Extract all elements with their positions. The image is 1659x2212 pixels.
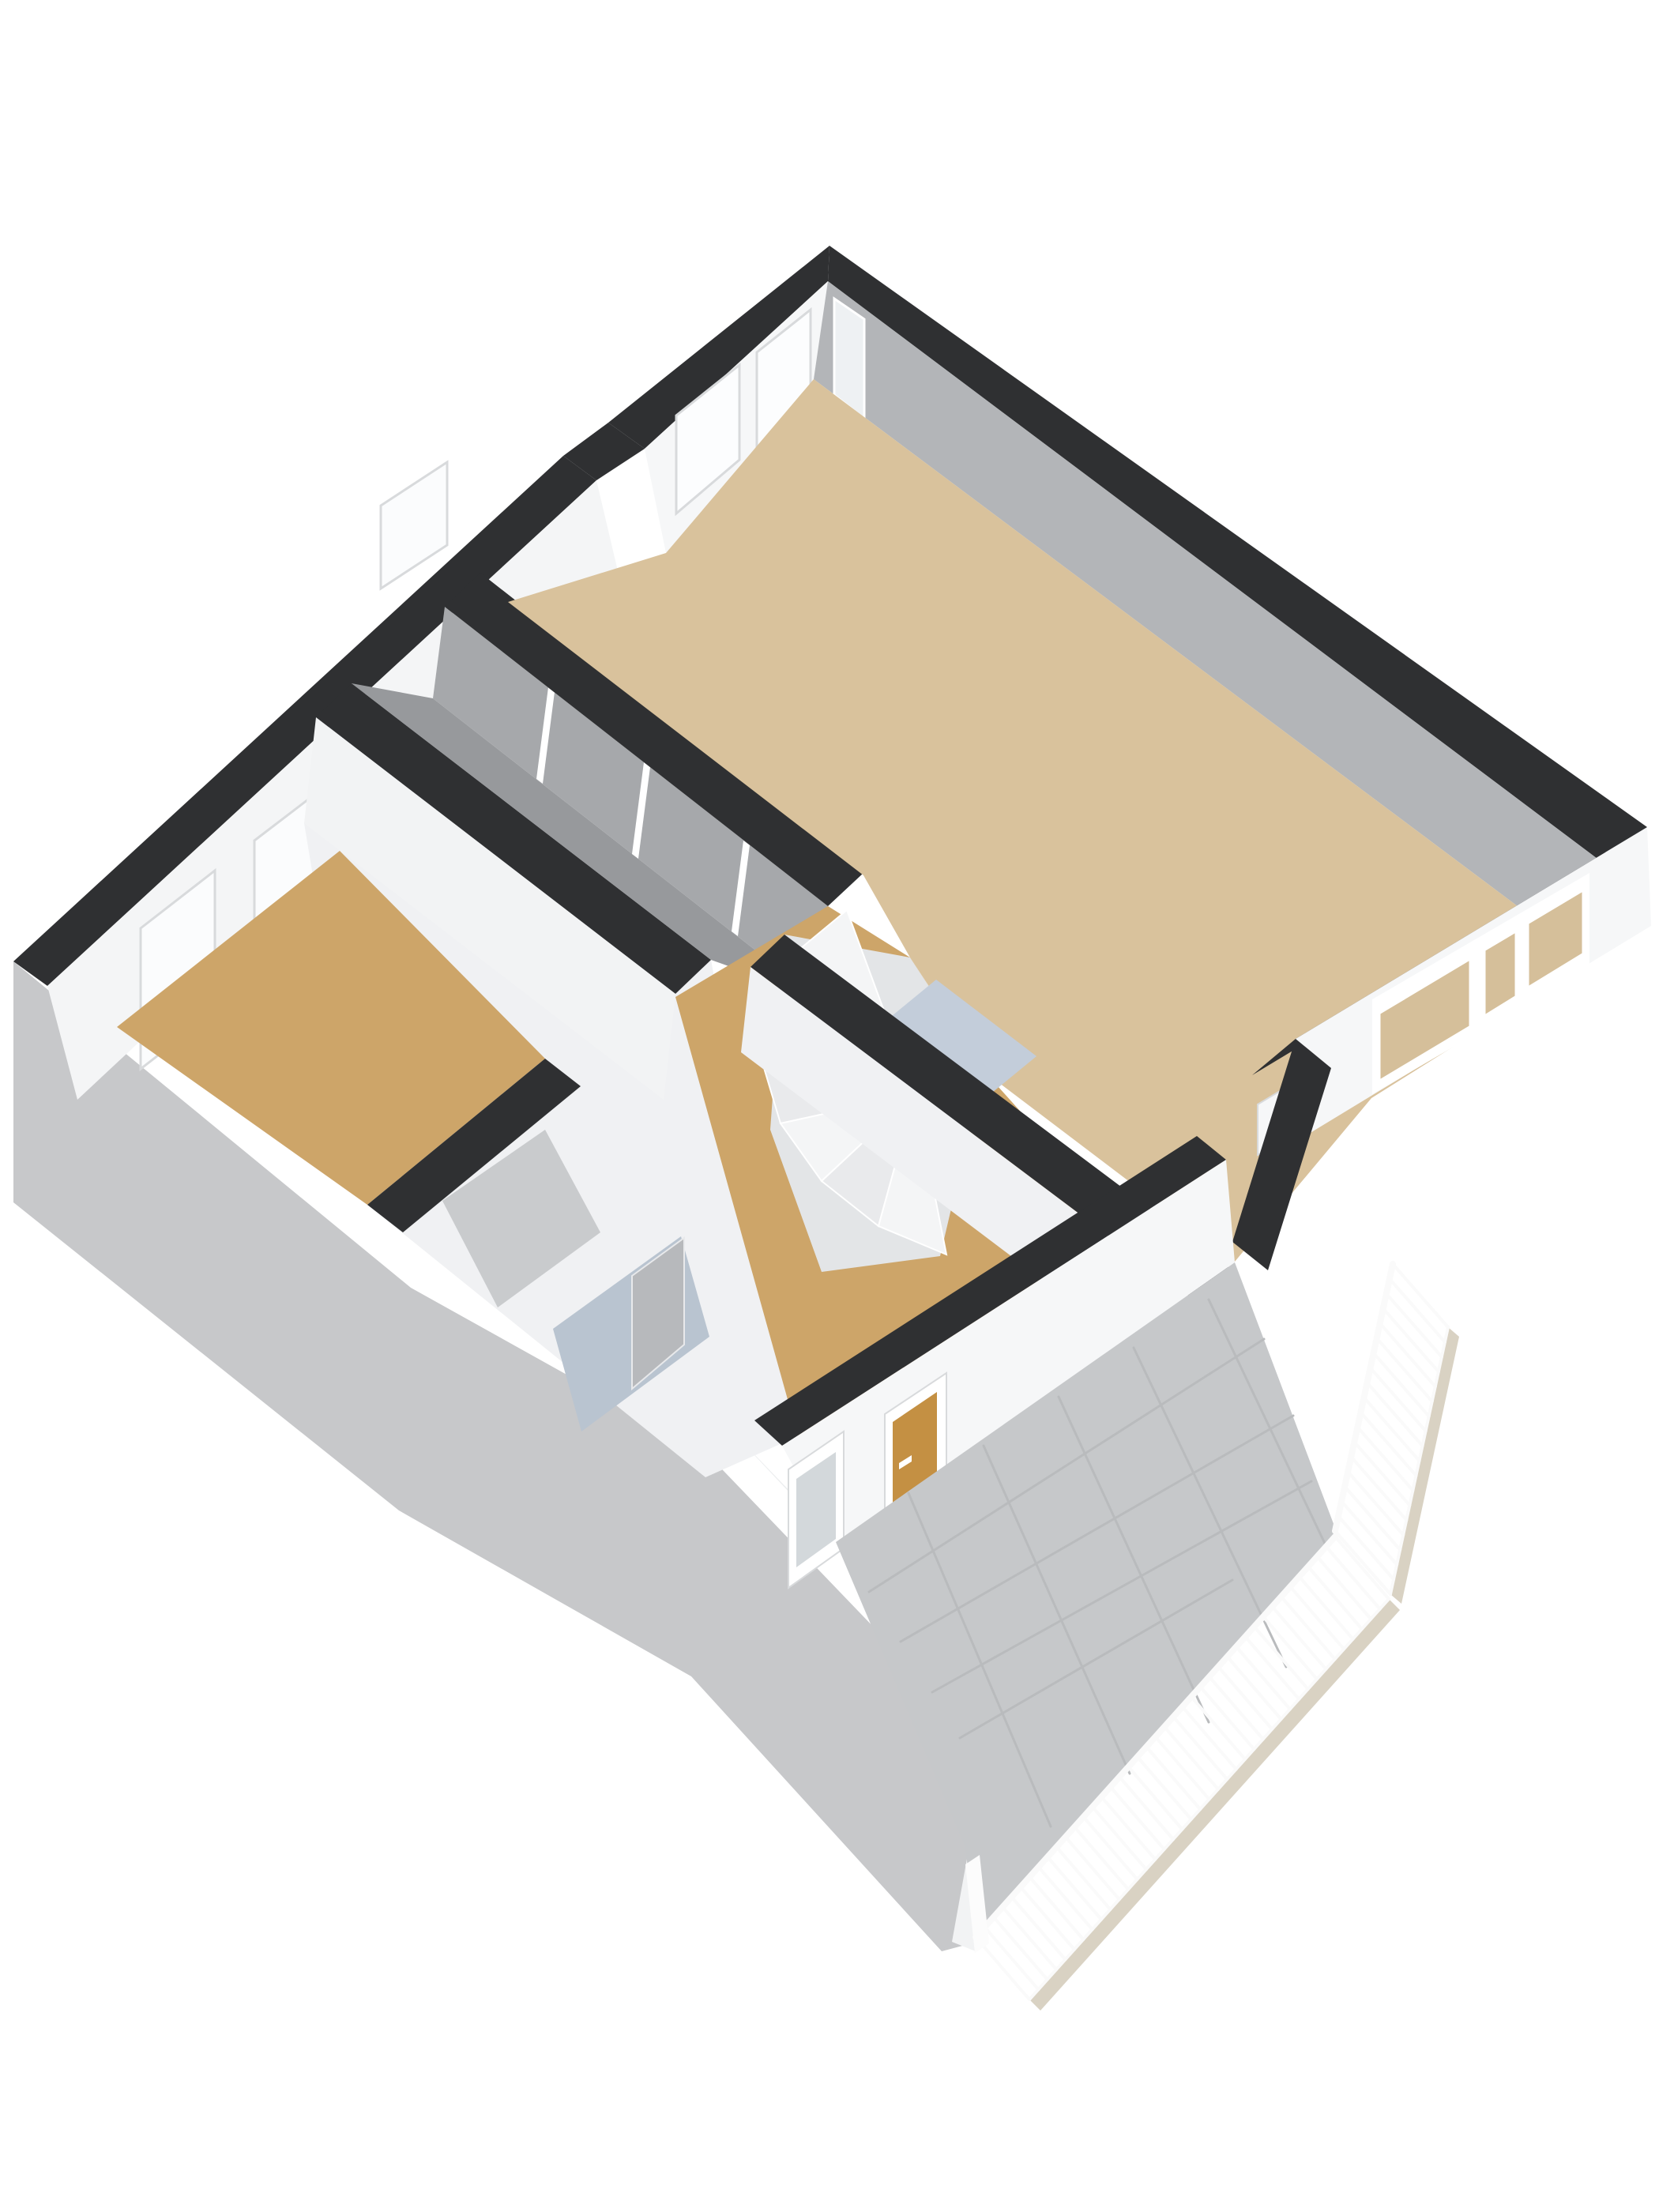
balcony-railing-northeast-baluster: [1360, 1413, 1416, 1476]
balcony-railing-northeast-baluster: [1351, 1457, 1406, 1520]
balcony-slab-edge-northeast: [1390, 1327, 1459, 1604]
balcony-railing-northeast-baluster: [1393, 1264, 1448, 1327]
floorplan-3d-render: [0, 0, 1659, 2212]
balcony-railing-northeast-baluster: [1386, 1294, 1442, 1357]
balcony-railing-northeast-baluster: [1364, 1398, 1420, 1461]
balcony-railing-northeast-baluster: [1357, 1428, 1413, 1491]
balcony-railing-northeast-baluster: [1345, 1487, 1400, 1550]
balcony-railing-northeast-baluster: [1377, 1338, 1432, 1401]
balcony-railing-northeast-baluster: [1380, 1323, 1435, 1386]
floorplan-svg: [0, 0, 1659, 2212]
balcony-railing-northeast-baluster: [1348, 1472, 1403, 1535]
balcony-railing-northeast-baluster: [1371, 1367, 1426, 1431]
balcony-railing-northeast-baluster: [1390, 1279, 1445, 1342]
balcony-railing-northeast-baluster: [1354, 1442, 1409, 1505]
hall-window-pane: [381, 462, 447, 589]
balcony-railing-northeast-baluster: [1367, 1382, 1423, 1446]
balcony-railing-northeast-baluster: [1383, 1308, 1439, 1371]
balcony-railing-northeast-baluster: [1374, 1353, 1429, 1416]
